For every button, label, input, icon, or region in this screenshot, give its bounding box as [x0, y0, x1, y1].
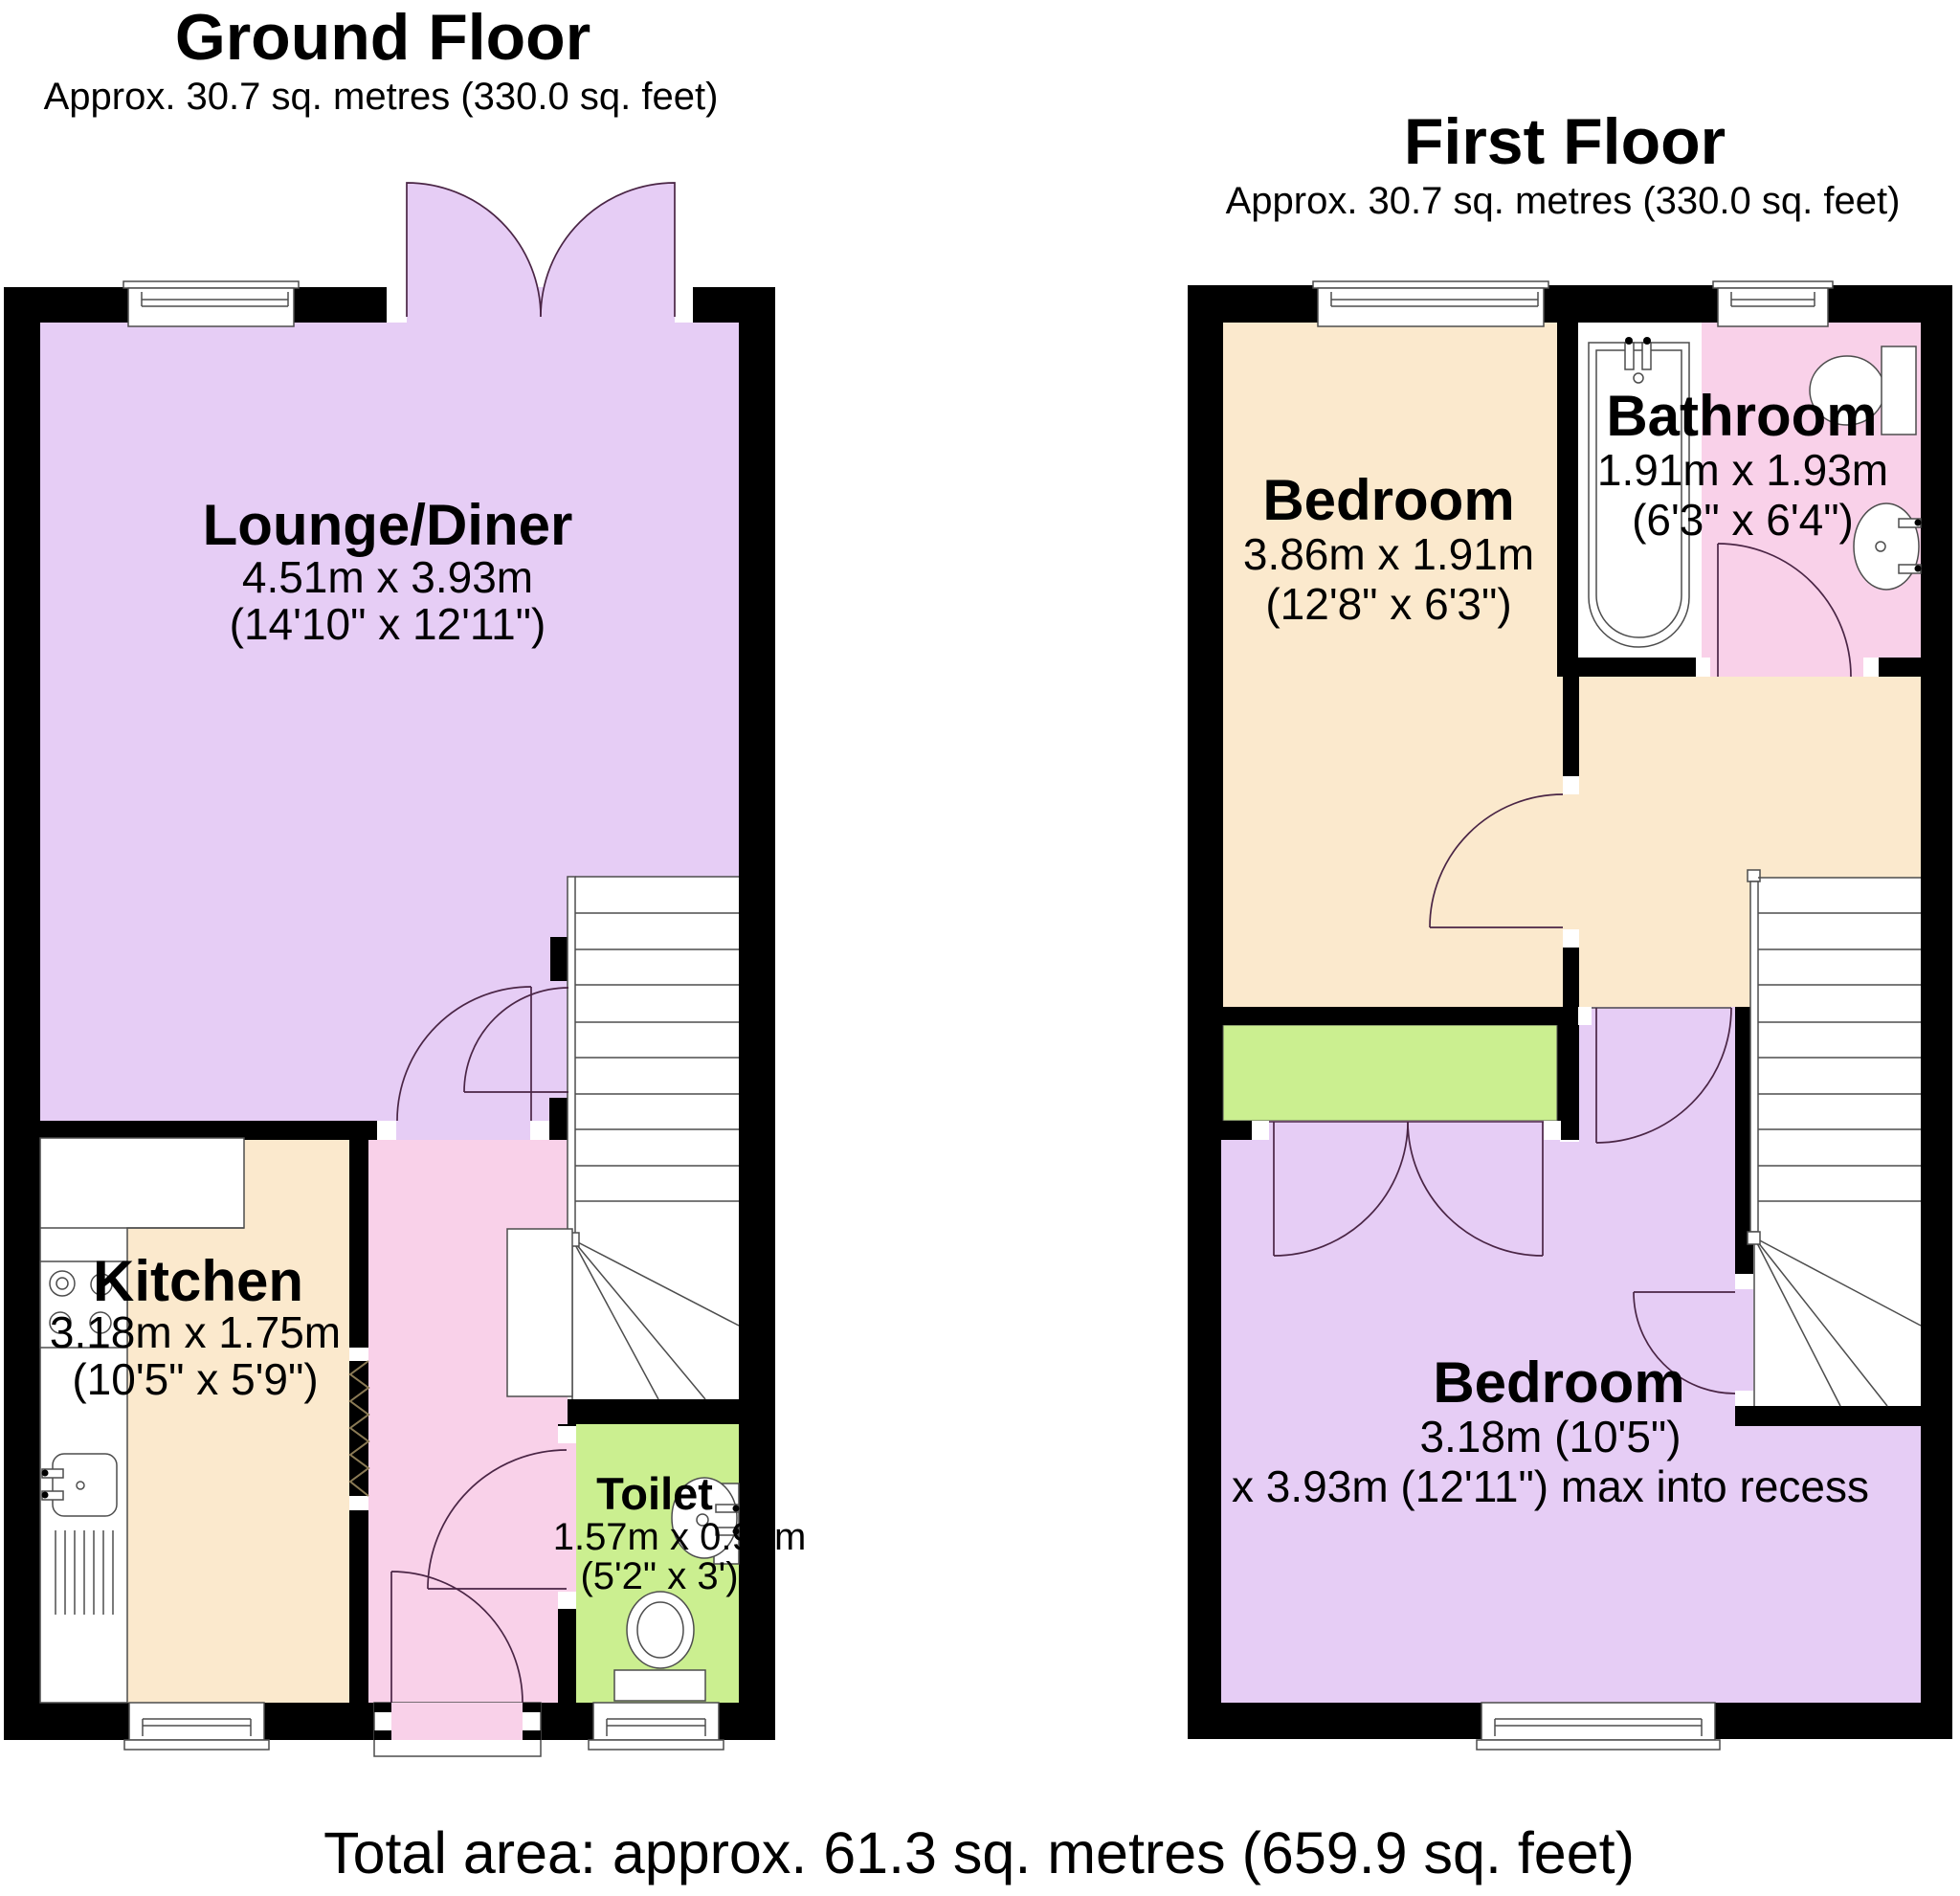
svg-text:Lounge/Diner: Lounge/Diner	[203, 493, 573, 557]
svg-text:1.91m x 1.93m: 1.91m x 1.93m	[1597, 445, 1888, 495]
svg-text:(6'3" x 6'4"): (6'3" x 6'4")	[1632, 495, 1854, 545]
svg-text:4.51m x 3.93m: 4.51m x 3.93m	[242, 552, 533, 602]
svg-text:3.18m (10'5"): 3.18m (10'5")	[1419, 1412, 1681, 1461]
svg-text:3.18m x 1.75m: 3.18m x 1.75m	[50, 1307, 341, 1357]
svg-text:Total area: approx. 61.3 sq. m: Total area: approx. 61.3 sq. metres (659…	[323, 1820, 1635, 1885]
svg-text:3.86m x 1.91m: 3.86m x 1.91m	[1243, 529, 1534, 579]
svg-text:(14'10" x 12'11"): (14'10" x 12'11")	[230, 599, 546, 649]
svg-text:Bedroom: Bedroom	[1262, 468, 1514, 532]
svg-text:Ground Floor: Ground Floor	[175, 1, 590, 74]
svg-text:Toilet: Toilet	[596, 1468, 713, 1519]
svg-text:1.57m x 0.94m: 1.57m x 0.94m	[553, 1516, 807, 1558]
svg-text:x 3.93m (12'11") max into rece: x 3.93m (12'11") max into recess	[1232, 1461, 1869, 1511]
svg-text:(10'5" x 5'9"): (10'5" x 5'9")	[72, 1354, 318, 1404]
svg-text:Approx. 30.7 sq. metres (330.0: Approx. 30.7 sq. metres (330.0 sq. feet)	[44, 76, 719, 118]
svg-text:(5'2" x 3'): (5'2" x 3')	[580, 1555, 738, 1597]
svg-text:First Floor: First Floor	[1404, 105, 1726, 178]
svg-text:Kitchen: Kitchen	[93, 1249, 303, 1313]
svg-text:Approx. 30.7 sq. metres (330.0: Approx. 30.7 sq. metres (330.0 sq. feet)	[1226, 180, 1901, 222]
svg-text:Bathroom: Bathroom	[1606, 384, 1877, 448]
svg-text:Bedroom: Bedroom	[1433, 1350, 1684, 1415]
svg-text:(12'8" x 6'3"): (12'8" x 6'3")	[1265, 579, 1511, 629]
